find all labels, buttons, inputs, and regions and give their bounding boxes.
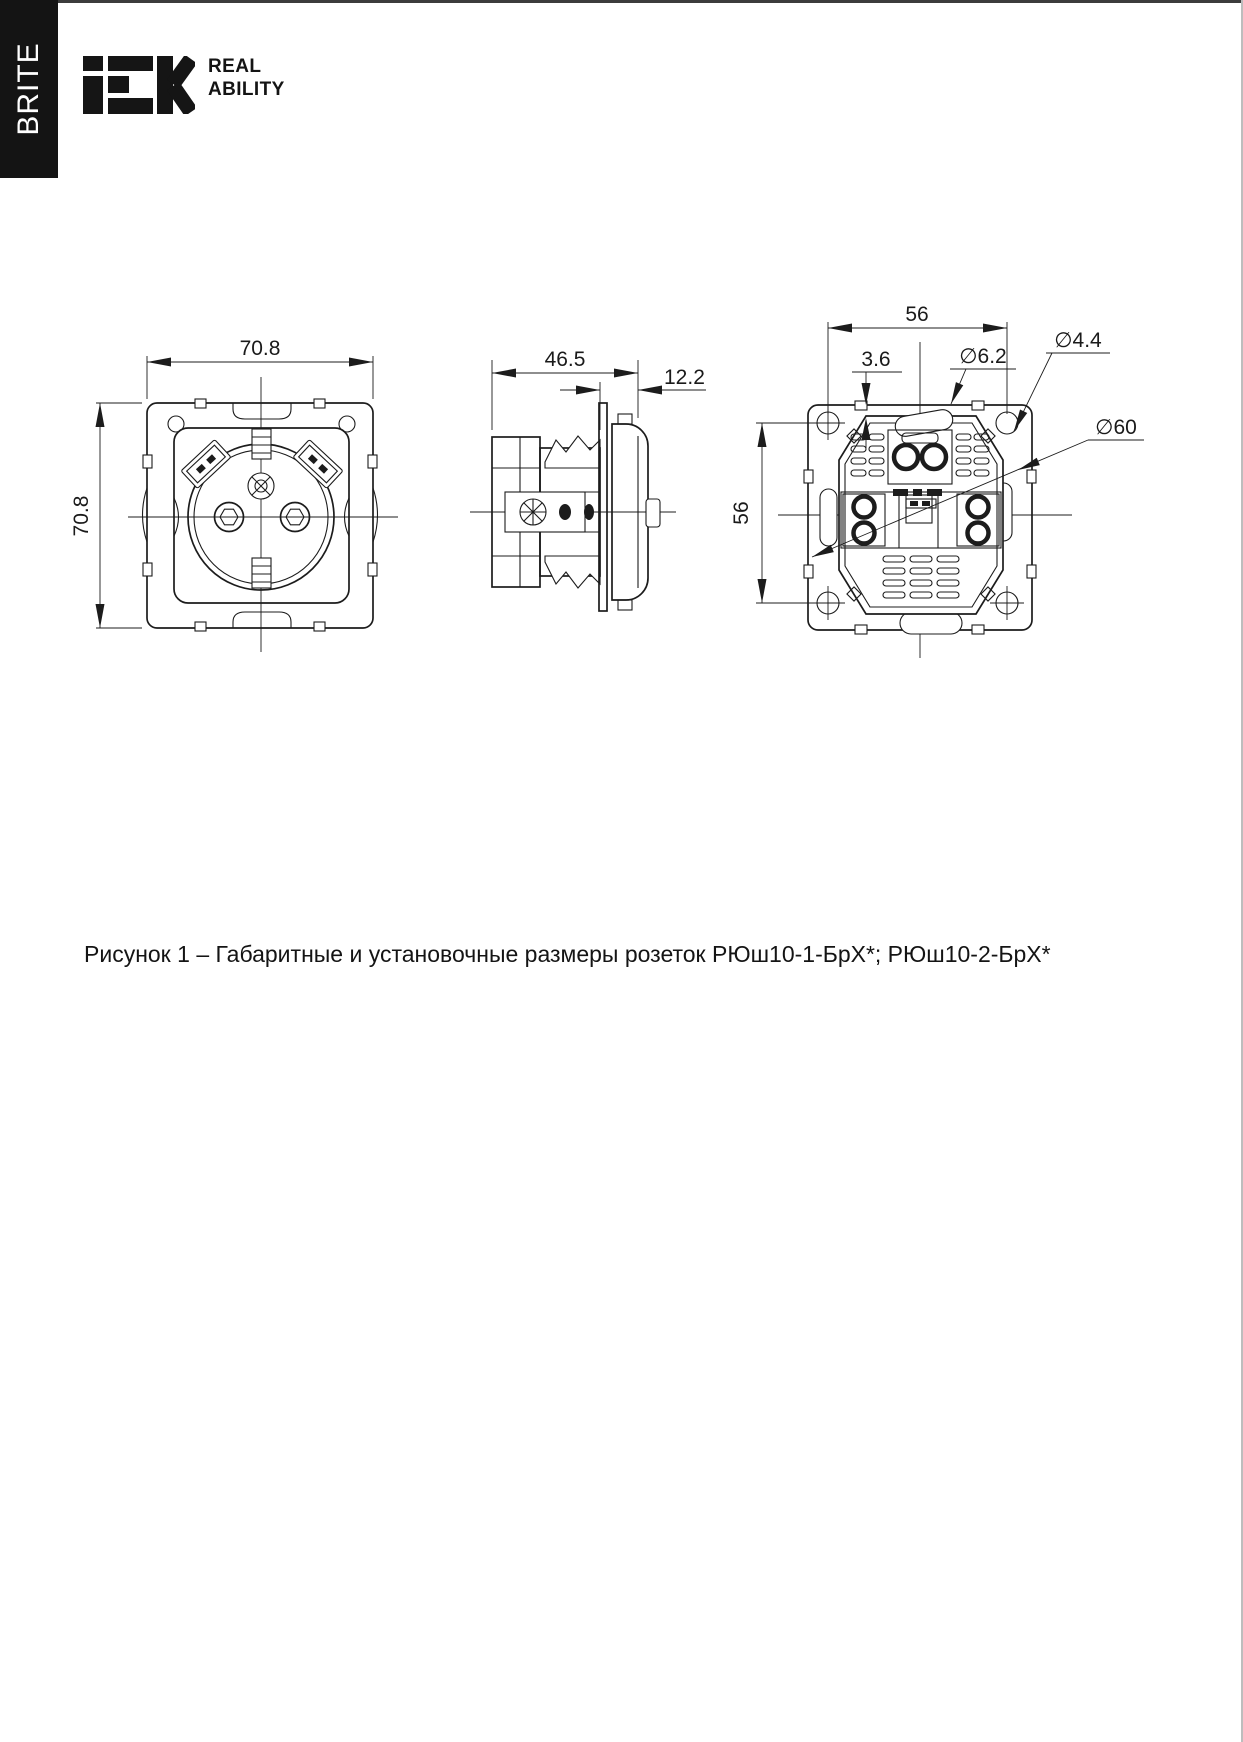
- dim-front-height: 70.8: [70, 403, 142, 628]
- fixing-hole-bottom-left: [811, 586, 845, 620]
- dim-label-hole-diameter: ∅4.4: [1054, 329, 1102, 352]
- dim-rear-hole-spacing-v: 56: [730, 423, 816, 603]
- dim-label-front-width: 70.8: [240, 337, 281, 360]
- rear-view-drawing: 56 56 3.6 ∅6.2: [730, 303, 1144, 658]
- fixing-hole-top-right: [996, 412, 1018, 434]
- dim-label-side-depth: 46.5: [545, 348, 586, 371]
- dim-label-front-height: 70.8: [70, 496, 93, 537]
- front-view-drawing: 70.8 70.8: [70, 337, 398, 652]
- dim-label-side-frame-depth: 12.2: [664, 366, 705, 389]
- dim-slot-diameter: ∅6.2: [947, 345, 1016, 406]
- dim-label-rear-spacing-h: 56: [905, 303, 928, 326]
- dim-front-width: 70.8: [147, 337, 373, 399]
- figure-1-drawings: 70.8 70.8: [0, 0, 1243, 700]
- document-page: BRITE REAL ABILITY: [0, 0, 1243, 1742]
- usb-port-right: [293, 440, 343, 489]
- dim-label-rear-offset: 3.6: [861, 348, 890, 371]
- dim-label-rear-spacing-v: 56: [730, 501, 753, 524]
- ground-clip-top: [252, 429, 271, 459]
- side-view-drawing: 46.5 12.2: [470, 348, 706, 611]
- ground-clip-bottom: [252, 558, 271, 588]
- dim-side-frame-depth: 12.2: [560, 366, 706, 430]
- dim-side-depth: 46.5: [492, 348, 638, 430]
- usb-port-left: [181, 440, 231, 489]
- figure-caption: Рисунок 1 – Габаритные и установочные ра…: [84, 941, 1051, 968]
- dim-label-slot-diameter: ∅6.2: [959, 345, 1007, 368]
- dim-label-body-diameter: ∅60: [1095, 416, 1137, 439]
- fixing-hole-bottom-right: [990, 586, 1024, 620]
